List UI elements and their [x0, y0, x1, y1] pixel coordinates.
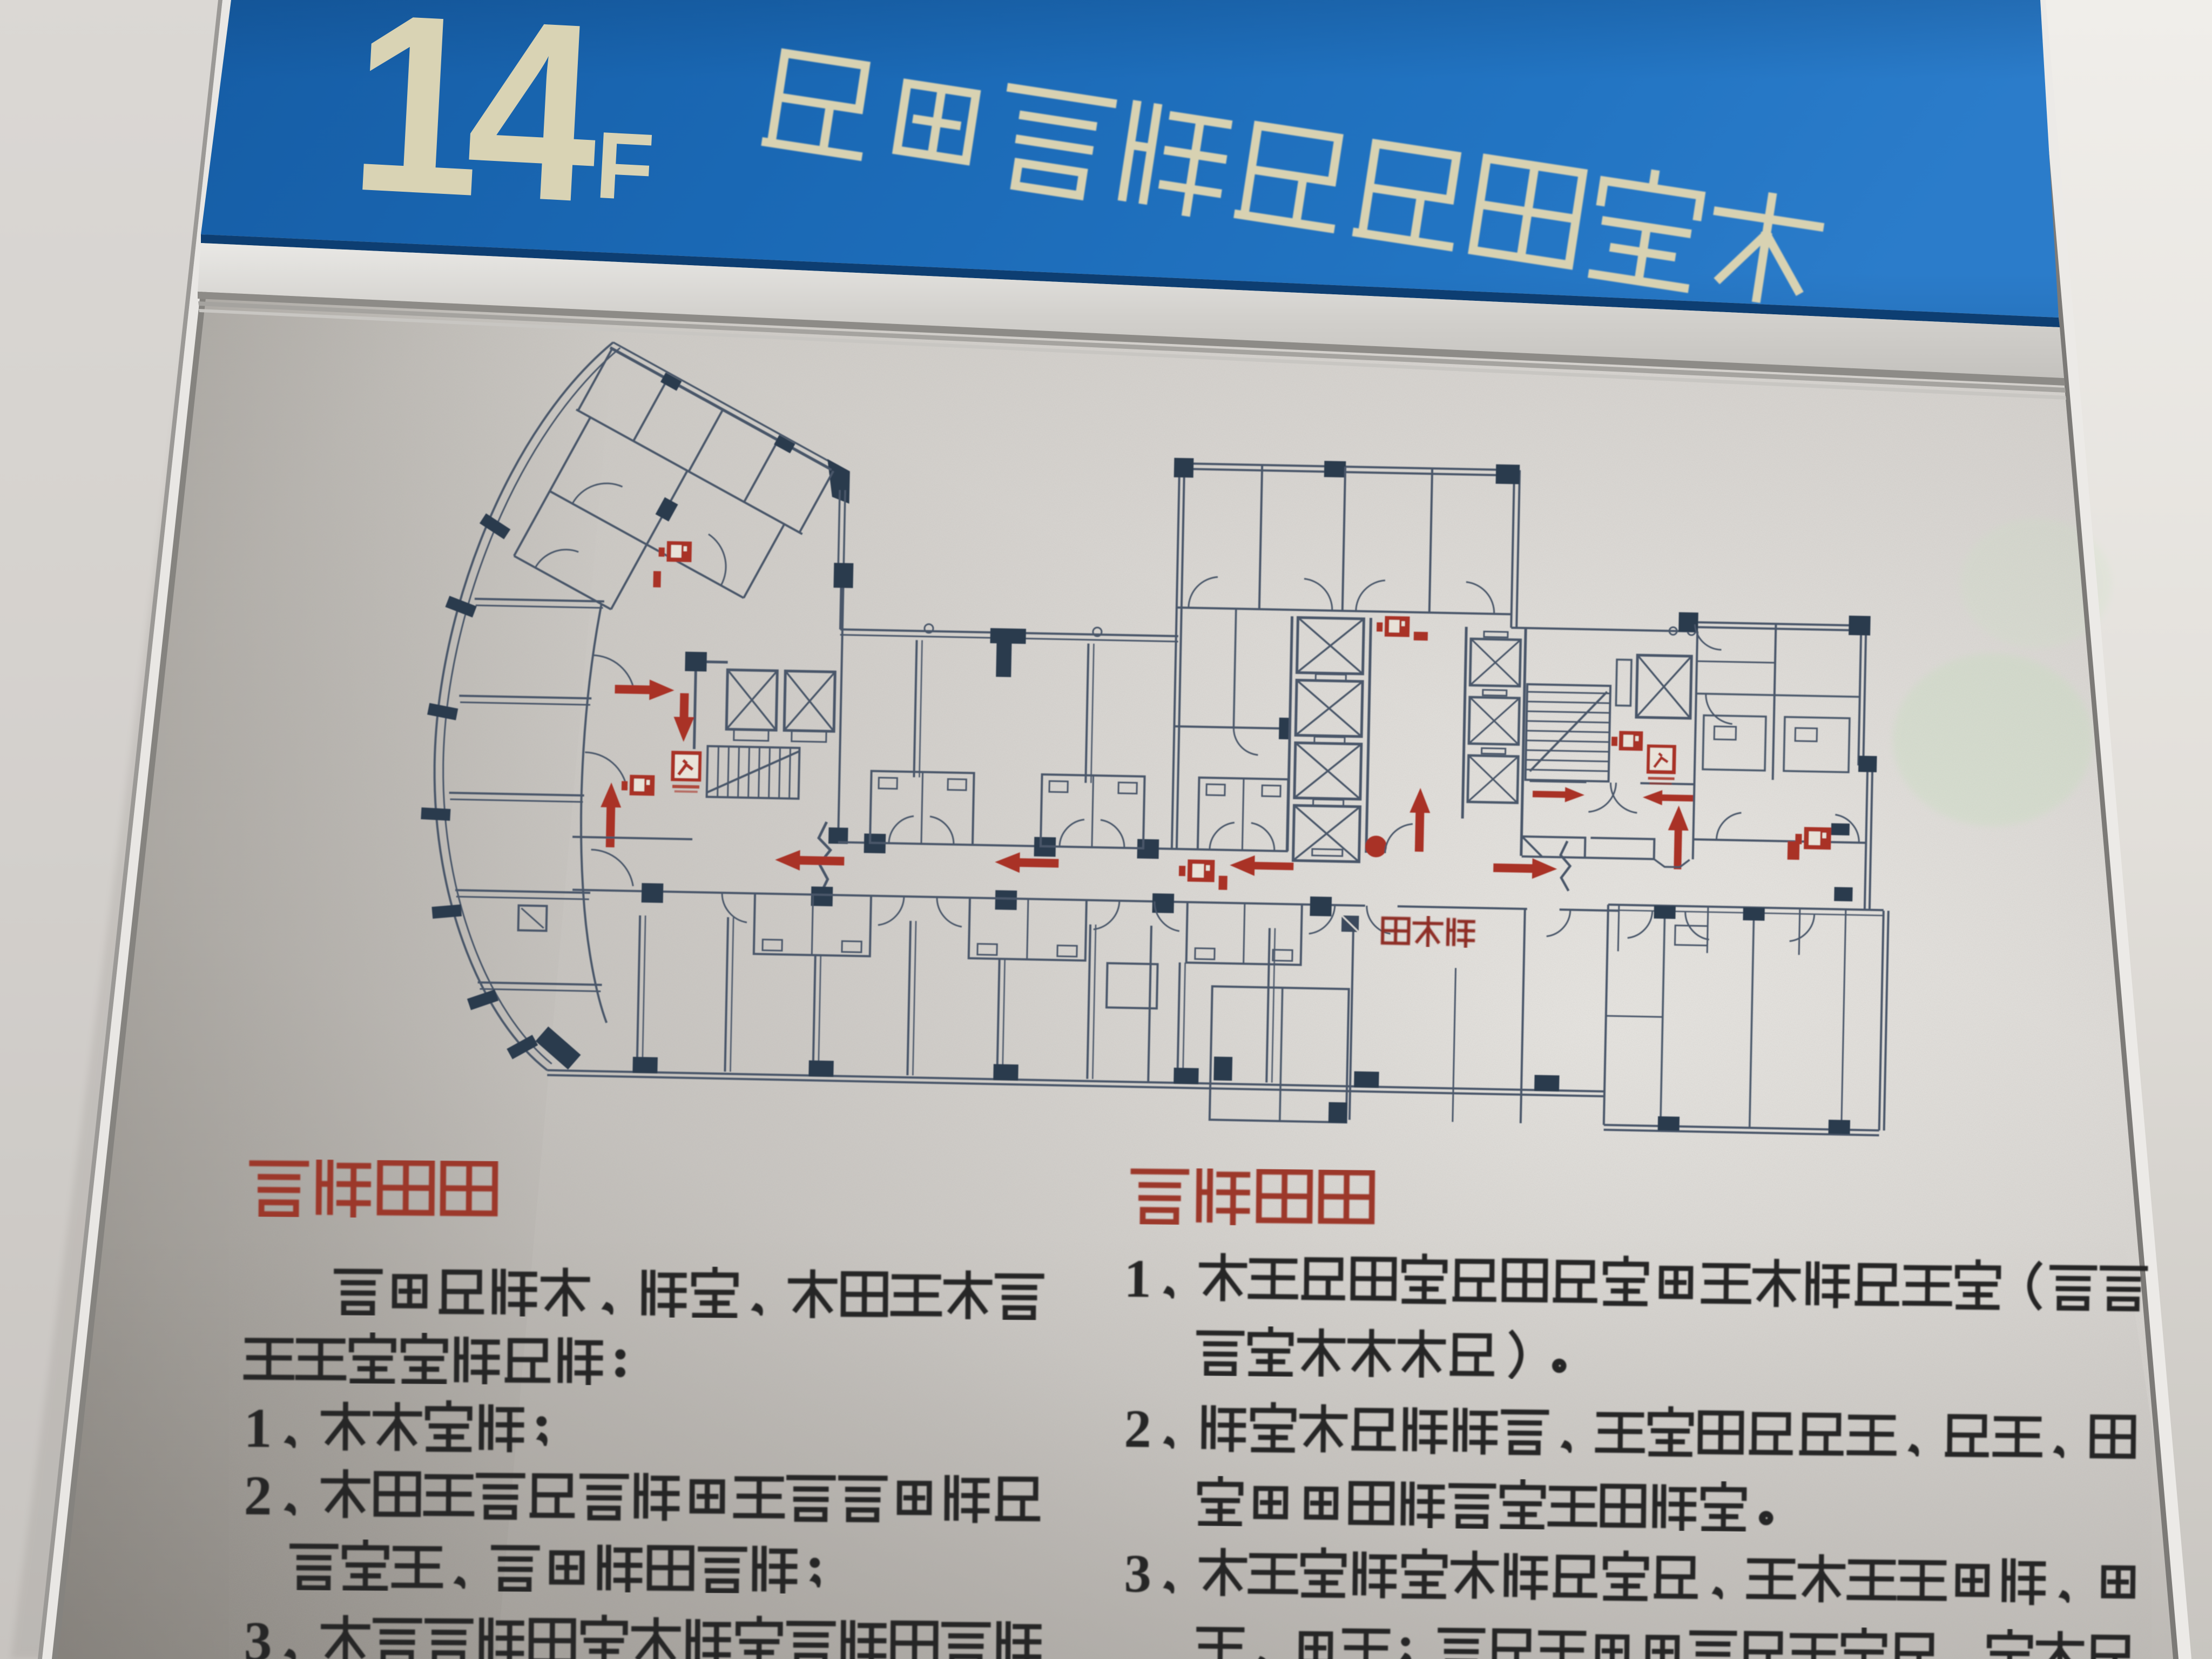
svg-text:1: 1 — [1124, 1248, 1152, 1309]
svg-text:2: 2 — [1124, 1398, 1152, 1459]
svg-text:1: 1 — [244, 1397, 272, 1459]
svg-text:3: 3 — [1124, 1543, 1152, 1604]
svg-text:2: 2 — [244, 1465, 272, 1527]
svg-text:14: 14 — [345, 0, 607, 255]
svg-text:F: F — [593, 112, 657, 221]
svg-text:3: 3 — [244, 1610, 272, 1659]
